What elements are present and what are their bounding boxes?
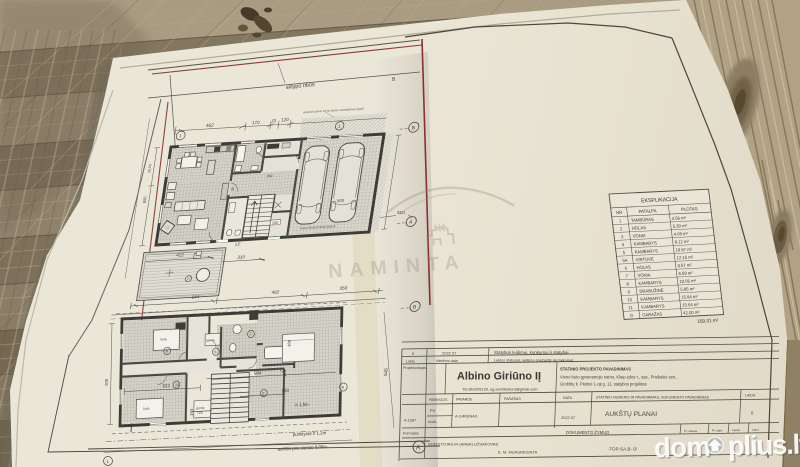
svg-text:Išleidimo data: Išleidimo data [436,359,458,363]
svg-text:TAMBŪRAS: TAMBŪRAS [631,217,655,223]
svg-text:8.69 m²: 8.69 m² [678,270,693,276]
svg-text:STATINIO NUMERIS IR PAVADINIMA: STATINIO NUMERIS IR PAVADINIMAS, DOKUMEN… [596,396,710,400]
svg-text:462: 462 [206,123,215,128]
svg-text:Pr. dalis: Pr. dalis [712,428,723,432]
svg-text:VONIA: VONIA [637,272,651,278]
svg-text:A.GIRIŪNAS: A.GIRIŪNAS [455,414,478,419]
svg-text:dom: dom [654,431,711,463]
svg-text:9: 9 [342,386,344,390]
svg-text:10: 10 [175,383,179,387]
svg-text:A: A [416,445,421,452]
svg-text:644: 644 [191,294,200,299]
svg-text:12.15 m²: 12.15 m² [676,254,694,260]
svg-text:spinta: spinta [196,406,205,411]
svg-text:PAREIGOS: PAREIGOS [429,398,448,402]
svg-text:35: 35 [231,187,236,191]
svg-text:2022 07: 2022 07 [442,350,457,355]
svg-text:PV: PV [430,408,436,413]
svg-text:120: 120 [282,369,287,377]
svg-text:2022 07: 2022 07 [561,415,575,420]
svg-text:Statybos leidimui, konkursui i: Statybos leidimui, konkursui ir statybai [494,350,568,355]
svg-text:Laidos statusas, keitimo priež: Laidos statusas, keitimo priežastis (jei… [494,359,574,363]
svg-text:Arch.: Arch. [428,419,437,424]
svg-text:h 1,5m: h 1,5m [295,402,309,408]
svg-text:42.00 m²: 42.00 m² [683,310,701,316]
svg-text:8: 8 [166,349,168,353]
svg-text:Laida: Laida [406,359,415,363]
svg-text:STATINIO PROJEKTO PAVADINIMAS: STATINIO PROJEKTO PAVADINIMAS [560,367,631,372]
svg-text:lova: lova [160,337,166,341]
svg-text:Grobštų k. Pietinė 1-oji g. 11: Grobštų k. Pietinė 1-oji g. 11, statybos… [560,381,647,386]
svg-text:PARAŠAS: PARAŠAS [504,396,521,401]
svg-text:169.31 m²: 169.31 m² [697,318,719,325]
svg-text:144: 144 [189,408,194,416]
svg-text:Tel.861005139, ag.architektura: Tel.861005139, ag.architektura@gmail.com [462,387,537,392]
svg-text:522: 522 [162,383,170,389]
svg-text:5A: 5A [622,258,628,263]
svg-text:8.57 m²: 8.57 m² [677,262,692,268]
svg-text:NR: NR [616,210,623,215]
svg-text:HOLAS: HOLAS [632,225,647,231]
svg-text:904: 904 [254,370,262,376]
svg-text:PAVARDE: PAVARDE [456,398,473,402]
svg-text:180: 180 [287,339,292,347]
svg-text:482: 482 [271,289,280,294]
svg-text:LAIDA: LAIDA [745,393,756,397]
svg-text:19.06 m²: 19.06 m² [679,278,697,284]
svg-text:lova: lova [143,406,149,410]
svg-text:Projektuotojas:: Projektuotojas: [403,366,427,370]
svg-text:Vieno buto gyvenamojo namo, Kl: Vieno buto gyvenamojo namo, Klaip ėdos r… [560,374,678,379]
svg-text:AUKŠTŲ PLANAI: AUKŠTŲ PLANAI [605,409,657,418]
svg-text:4.08 m²: 4.08 m² [673,231,688,237]
svg-text:-TOP-SA.B- 0/: -TOP-SA.B- 0/ [608,447,638,452]
svg-text:200: 200 [104,378,109,386]
svg-text:4.56 m²: 4.56 m² [672,215,687,221]
svg-text:6: 6 [214,350,216,354]
svg-text:VIRTUVE: VIRTUVE [635,256,654,262]
svg-text:HOLAS: HOLAS [636,264,651,270]
svg-text:DATA: DATA [563,396,573,400]
svg-text:5.85 m²: 5.85 m² [680,286,695,292]
svg-text:8.12 m²: 8.12 m² [674,239,689,245]
svg-text:A 1387: A 1387 [404,418,416,423]
svg-text:260: 260 [282,388,290,394]
svg-text:170: 170 [252,120,261,125]
svg-text:15.84 m²: 15.84 m² [681,294,699,300]
svg-text:plius.lt: plius.lt [728,428,800,461]
svg-text:E. M. MUASREIUNTA: E. M. MUASREIUNTA [498,450,538,455]
svg-text:120: 120 [281,117,290,122]
svg-text:264: 264 [266,174,273,178]
svg-text:LT: LT [235,242,241,247]
svg-text:Formatas: Formatas [403,432,419,436]
svg-text:5.30 m²: 5.30 m² [672,223,687,229]
svg-text:PLOTAS: PLOTAS [681,206,698,212]
svg-text:7: 7 [250,332,252,336]
svg-text:VONIA: VONIA [632,233,646,239]
svg-text:545: 545 [383,368,389,377]
svg-text:Albino Giriūno IĮ: Albino Giriūno IĮ [457,371,541,383]
svg-text:350: 350 [339,285,348,290]
svg-text:15.64 m²: 15.64 m² [682,302,700,308]
svg-text:STATYTOJAS IR (ARBA) UŽSAKOVAS: STATYTOJAS IR (ARBA) UŽSAKOVAS [428,442,498,447]
svg-text:422: 422 [176,252,185,257]
svg-text:DOKUMENTO ŽYMUO: DOKUMENTO ŽYMUO [566,430,610,435]
svg-text:310: 310 [237,254,246,259]
svg-text:19.67 m²: 19.67 m² [675,247,693,253]
svg-text:GARAŽAS: GARAŽAS [642,311,663,317]
svg-text:PATALPA: PATALPA [638,208,657,214]
